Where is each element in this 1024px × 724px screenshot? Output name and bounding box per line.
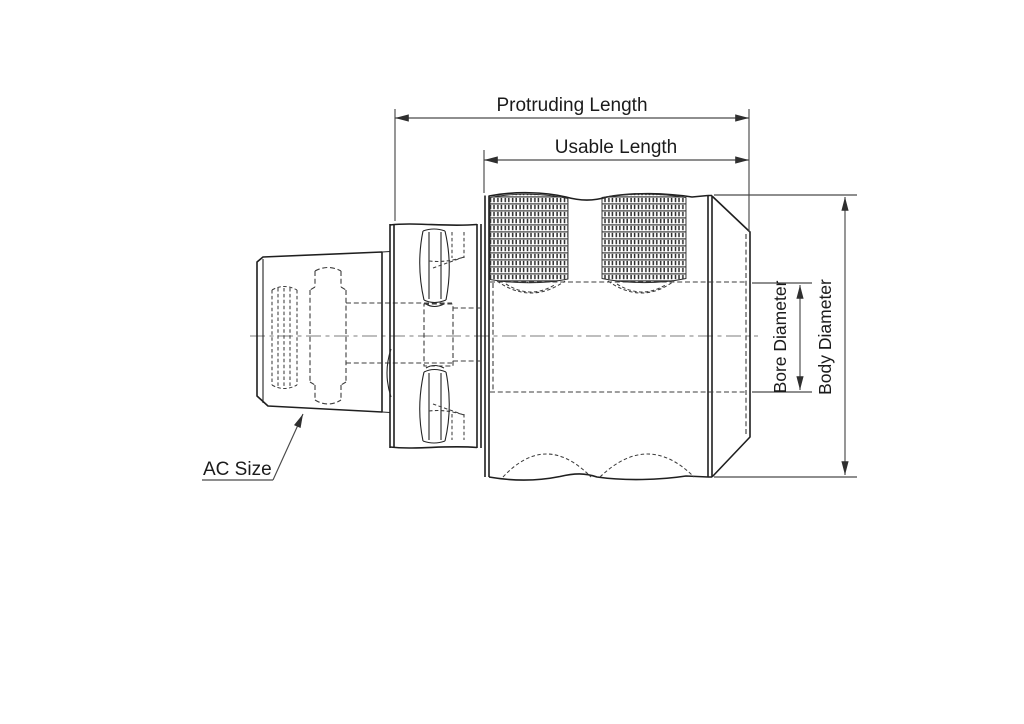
technical-drawing: Protruding Length Usable Length Bore Dia… [0, 0, 1024, 724]
bore-diameter-label: Bore Diameter [770, 280, 790, 393]
flange-center-pocket-hidden [424, 304, 453, 366]
dimension-protruding-length: Protruding Length [395, 95, 749, 232]
protruding-length-label: Protruding Length [496, 95, 647, 116]
dimension-usable-length: Usable Length [484, 137, 749, 193]
callout-ac-size: AC Size [202, 414, 303, 480]
flange-lower-slot [420, 366, 464, 444]
internal-thread-hidden [272, 287, 297, 389]
dimension-bore-diameter: Bore Diameter [752, 280, 812, 393]
ac-size-label: AC Size [203, 459, 272, 480]
bottom-hidden-arcs [503, 454, 694, 477]
bore-hidden-lines [346, 303, 452, 363]
usable-length-label: Usable Length [555, 137, 678, 158]
knurl-patch-right [602, 194, 686, 293]
body-diameter-label: Body Diameter [815, 279, 835, 395]
taper-shank [257, 252, 452, 413]
knurl-patch-left [490, 194, 568, 293]
flange-upper-slot [420, 229, 464, 307]
drawing-page: Protruding Length Usable Length Bore Dia… [0, 0, 1024, 724]
